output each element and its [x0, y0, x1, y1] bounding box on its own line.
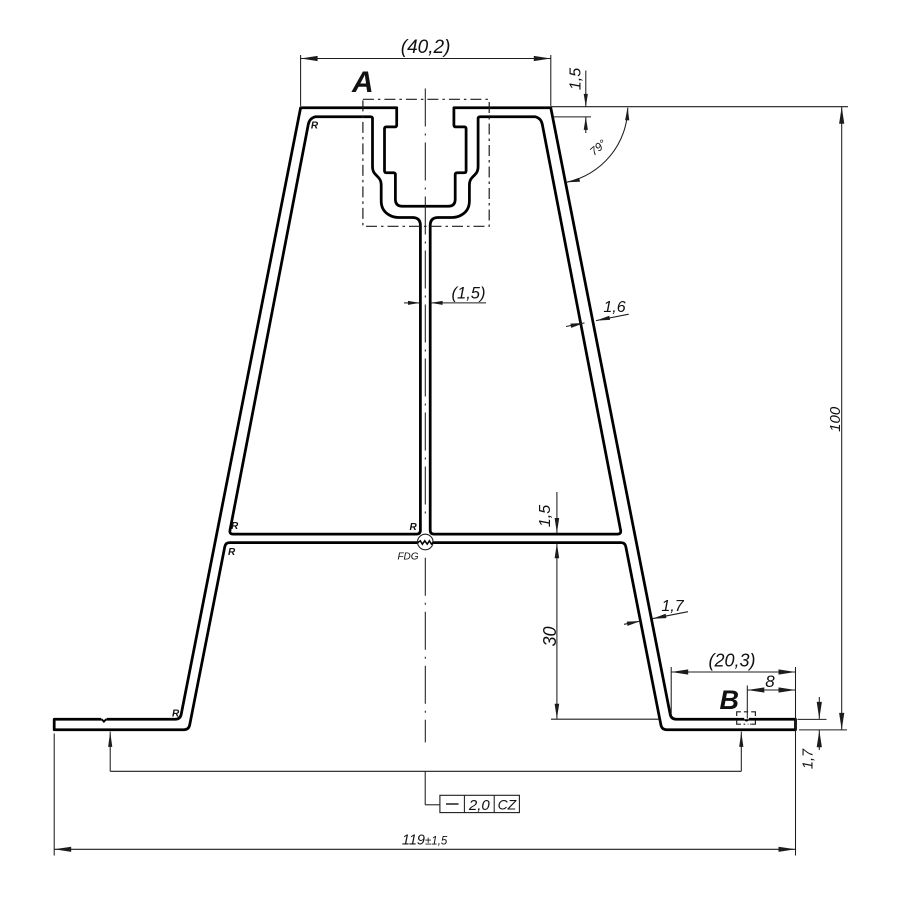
svg-text:100: 100 — [827, 406, 844, 432]
svg-text:1,7: 1,7 — [661, 598, 684, 615]
svg-text:R: R — [172, 709, 180, 720]
svg-text:119±1,5: 119±1,5 — [402, 833, 448, 849]
svg-text:R: R — [231, 521, 239, 532]
svg-text:(1,5): (1,5) — [452, 285, 486, 303]
svg-text:8: 8 — [765, 672, 775, 691]
svg-text:FDG: FDG — [397, 552, 418, 563]
svg-text:(40,2): (40,2) — [401, 37, 451, 58]
svg-text:1,5: 1,5 — [537, 505, 554, 527]
svg-text:(20,3): (20,3) — [708, 651, 755, 671]
svg-text:CZ: CZ — [498, 796, 517, 812]
svg-text:R: R — [228, 547, 236, 558]
svg-text:30: 30 — [540, 626, 560, 646]
svg-text:R: R — [410, 522, 418, 533]
svg-text:1,5: 1,5 — [568, 68, 585, 90]
svg-text:R: R — [311, 121, 319, 132]
svg-text:1,7: 1,7 — [801, 748, 817, 769]
svg-text:B: B — [720, 685, 740, 715]
svg-text:1,6: 1,6 — [603, 299, 625, 316]
svg-text:2,0: 2,0 — [468, 797, 491, 814]
svg-text:A: A — [351, 66, 374, 99]
